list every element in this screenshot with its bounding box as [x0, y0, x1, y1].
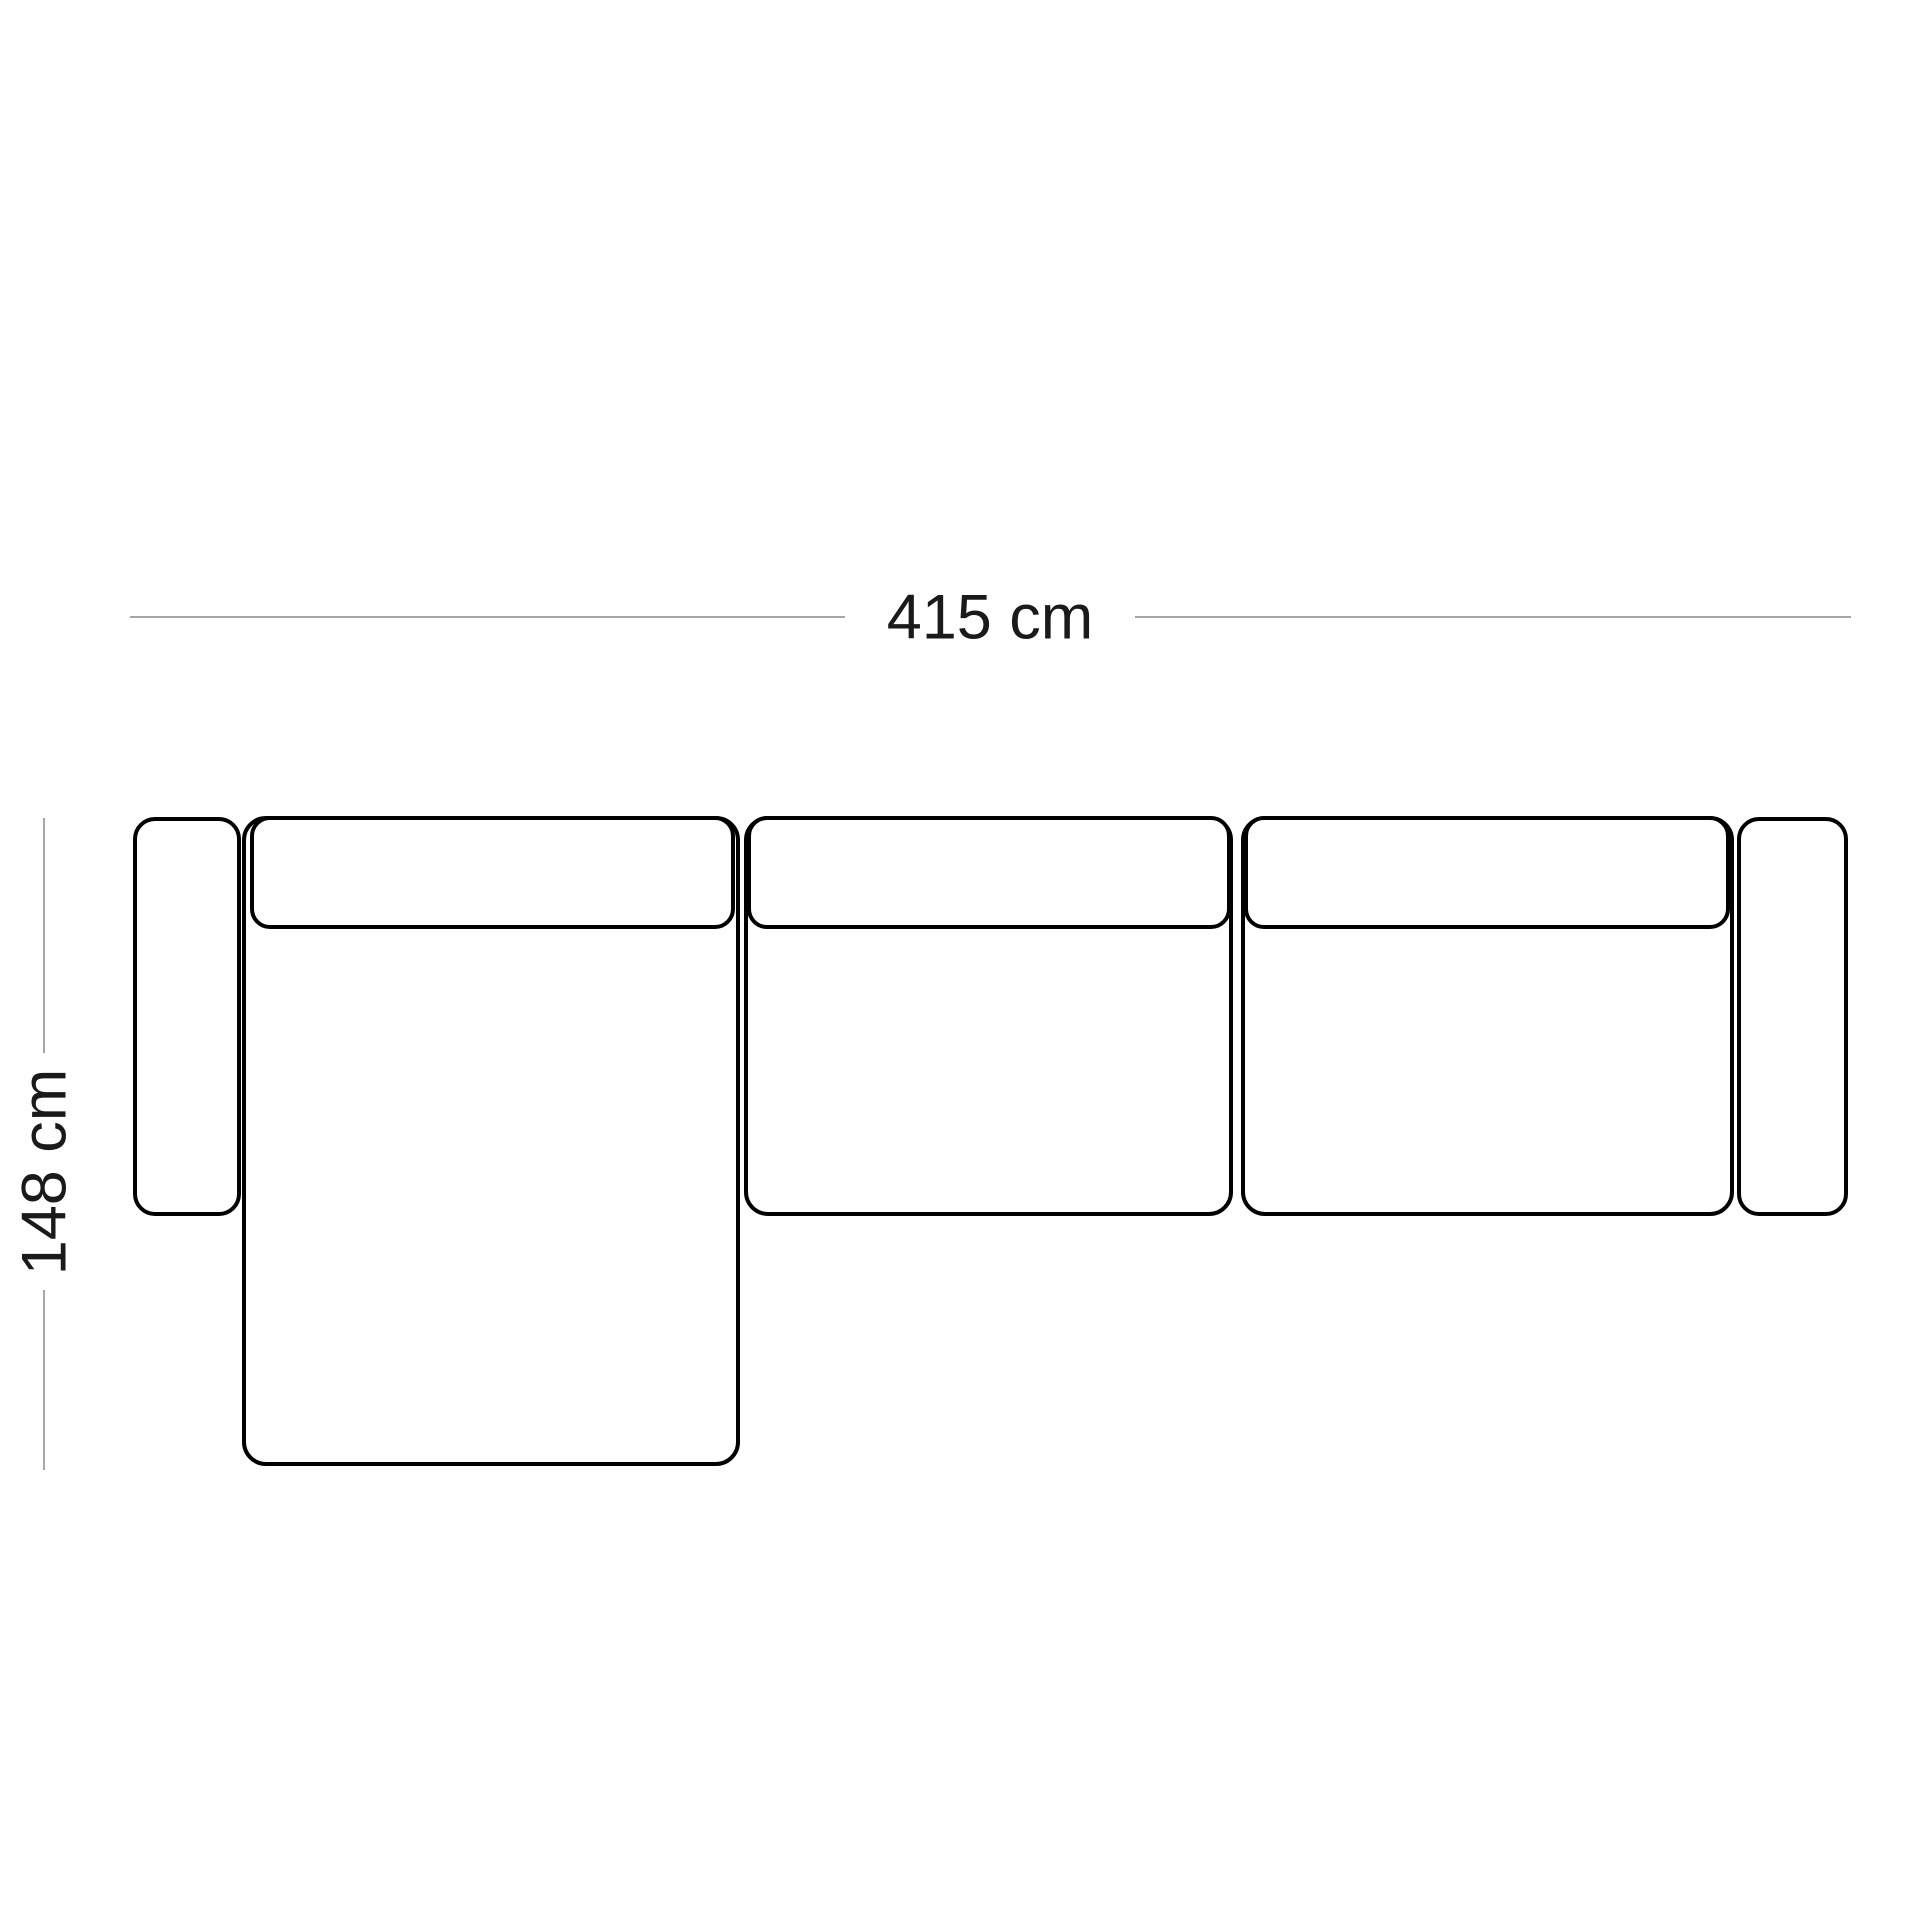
- width-dimension-label: 415 cm: [887, 587, 1094, 650]
- width-dimension-line-right: [1135, 616, 1851, 618]
- left-armrest: [133, 817, 241, 1216]
- depth-dimension-line-bottom: [43, 1290, 45, 1470]
- depth-dimension-line-top: [43, 818, 45, 1053]
- depth-dimension-label: 148 cm: [14, 1069, 77, 1276]
- right-armrest: [1737, 817, 1848, 1216]
- width-dimension-line-left: [130, 616, 845, 618]
- chaise-backrest-cushion: [250, 816, 735, 929]
- sofa-dimension-diagram: 415 cm 148 cm: [0, 0, 1920, 1920]
- middle-backrest-cushion: [747, 816, 1231, 929]
- right-backrest-cushion: [1244, 816, 1730, 929]
